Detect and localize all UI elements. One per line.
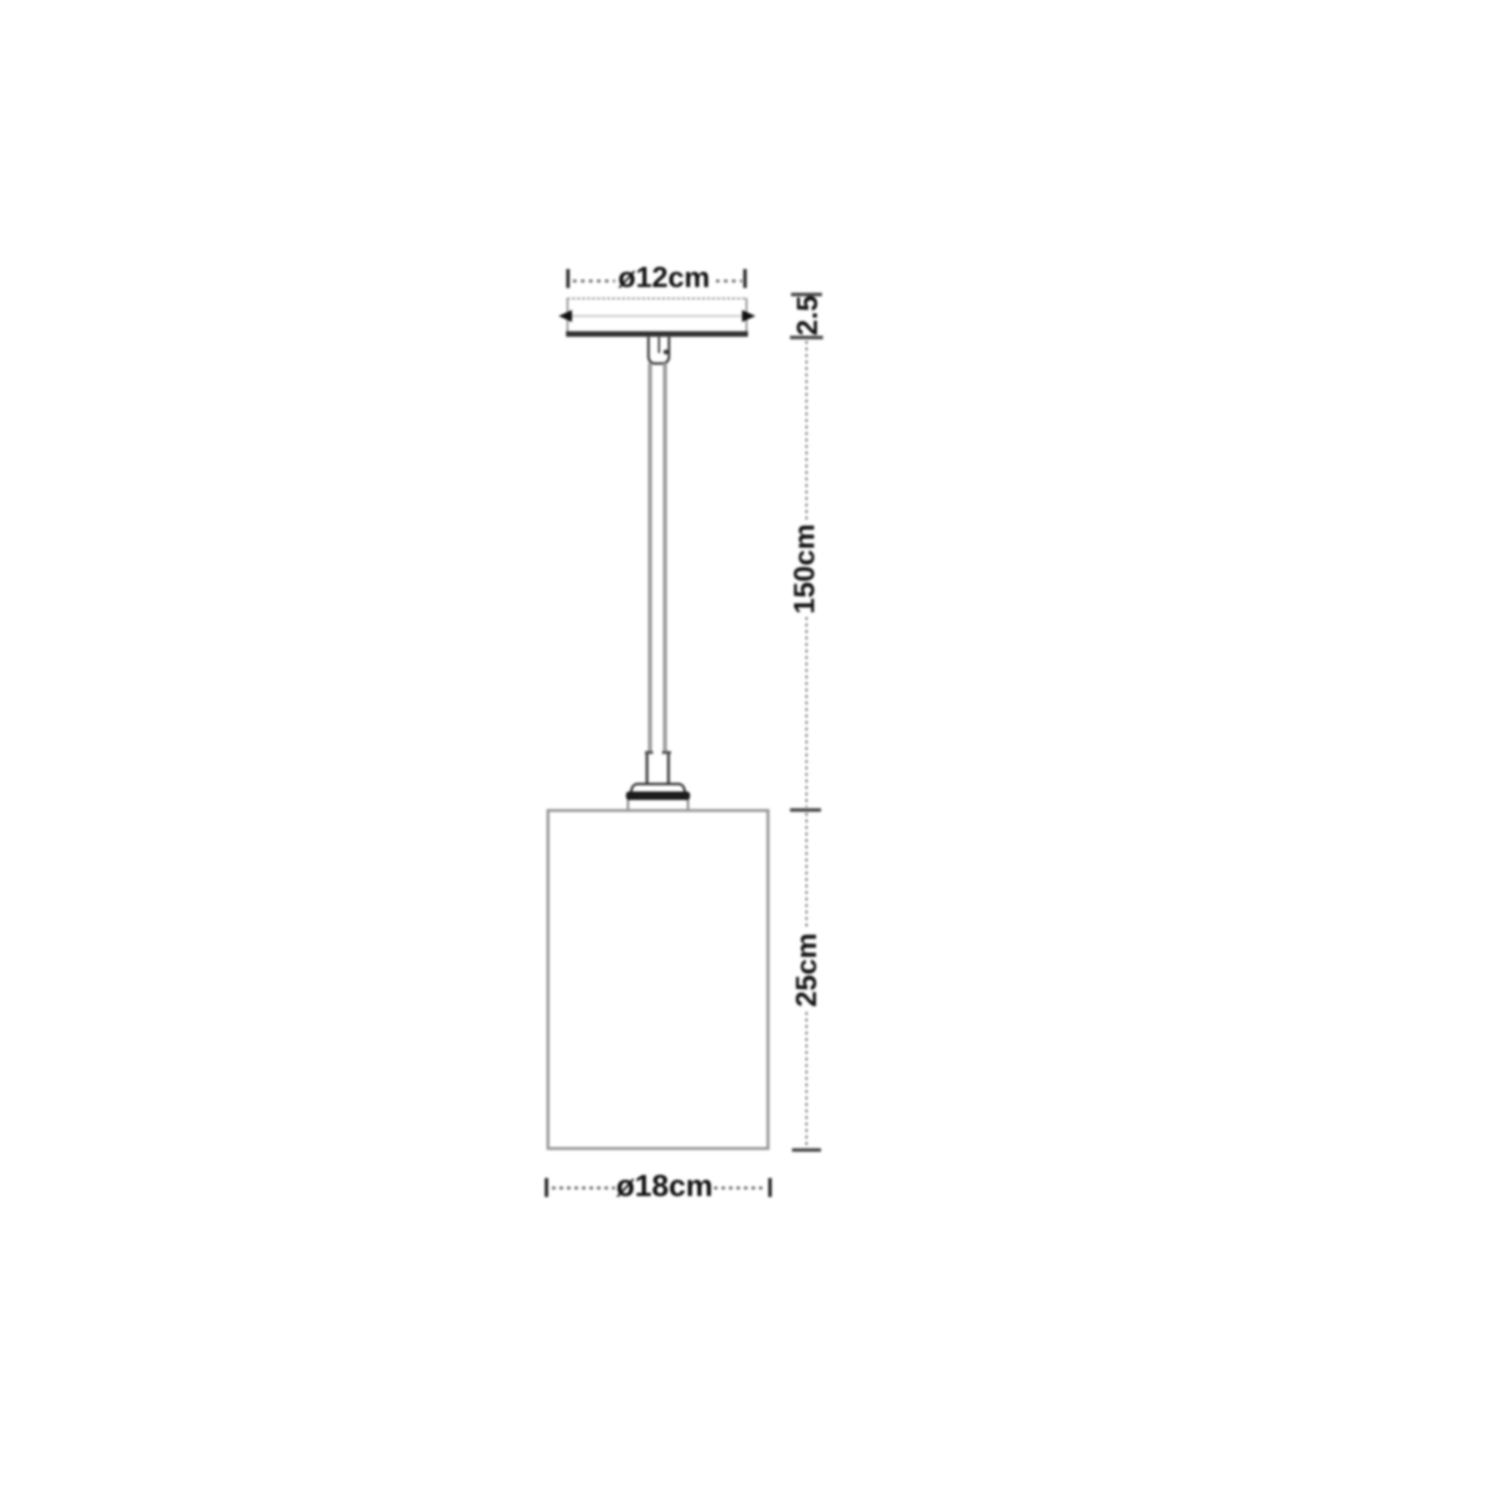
svg-text:ø12cm: ø12cm [618,262,710,294]
svg-text:25cm: 25cm [791,933,823,1007]
svg-text:150cm: 150cm [789,524,821,614]
svg-text:2.5: 2.5 [792,295,824,335]
svg-text:ø18cm: ø18cm [616,1169,713,1203]
